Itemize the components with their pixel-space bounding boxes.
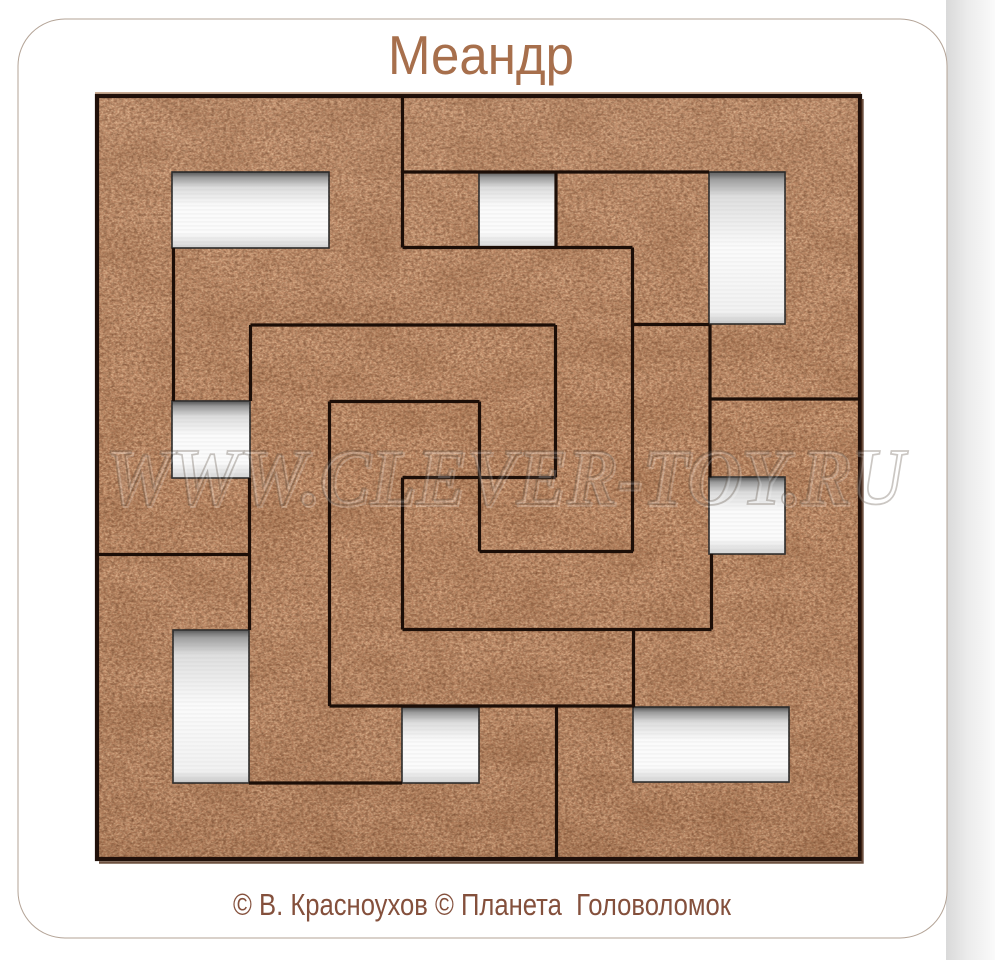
svg-text:Меандр: Меандр [388, 24, 574, 86]
svg-text:WWW.CLEVER-TOY.RU: WWW.CLEVER-TOY.RU [105, 434, 909, 522]
svg-text:© В. Красноухов © Планета Гол: © В. Красноухов © Планета Головоломок [233, 887, 731, 922]
